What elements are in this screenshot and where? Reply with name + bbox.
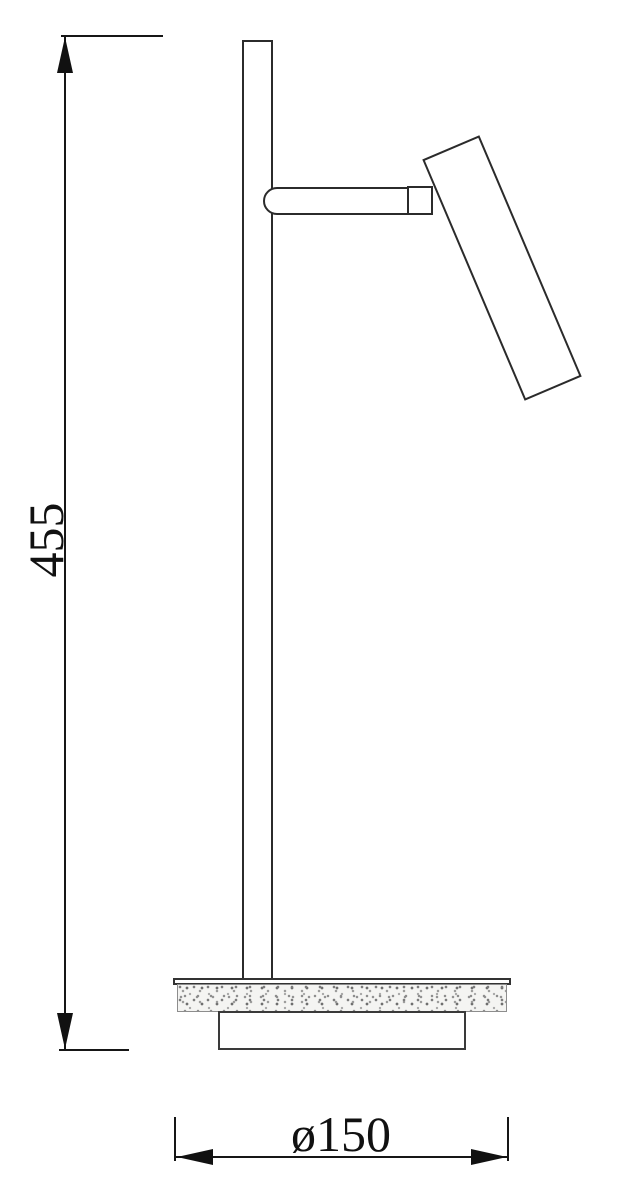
diameter-extension-line-right <box>507 1117 509 1161</box>
technical-drawing-canvas: 455 ø150 <box>0 0 619 1200</box>
base-underside-box <box>218 1011 466 1050</box>
height-extension-line-top <box>61 35 163 37</box>
height-dimension-label: 455 <box>20 480 70 600</box>
arrow-left-icon <box>177 1149 213 1165</box>
arrow-right-icon <box>471 1149 507 1165</box>
lamp-head-cylinder <box>422 135 581 400</box>
lamp-pole <box>242 40 273 981</box>
diameter-extension-line-left <box>174 1117 176 1161</box>
height-extension-line-bottom <box>59 1049 129 1051</box>
base-textured-band <box>177 984 507 1012</box>
lamp-arm <box>263 187 409 215</box>
diameter-dimension-label: ø150 <box>241 1108 441 1160</box>
arrow-up-icon <box>57 37 73 73</box>
lamp-head-joint <box>407 186 433 215</box>
arrow-down-icon <box>57 1013 73 1049</box>
